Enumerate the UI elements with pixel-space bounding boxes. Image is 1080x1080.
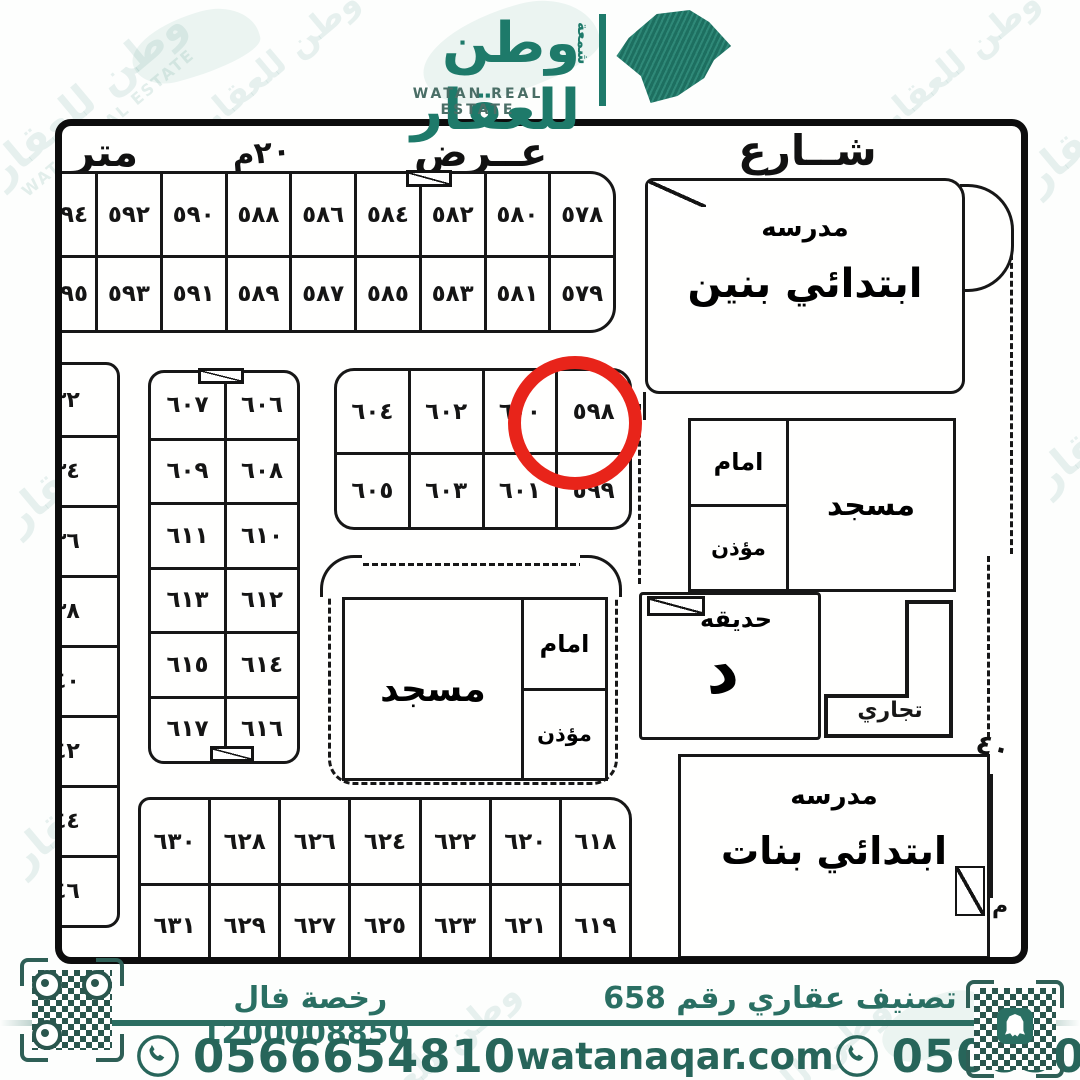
plot-row: ٩٥٥٩٣٥٩١٥٨٩٥٨٧٥٨٥٥٨٣٥٨١٥٧٩ <box>55 258 613 330</box>
street-meter-word: متر <box>72 130 138 176</box>
plot-number: ٩٥ <box>55 258 95 330</box>
plot-block-south: ٦٣٠٦٢٨٦٢٦٦٢٤٦٢٢٦٢٠٦١٨ ٦٣١٦٢٩٦٢٧٦٢٥٦٢٣٦٢١… <box>138 797 632 964</box>
qr-finder <box>32 970 62 1000</box>
plot-number: ٦٢٢ <box>419 800 489 883</box>
plot-number: ٦٢٦ <box>278 800 348 883</box>
qr-bracket <box>96 1034 124 1062</box>
watermark-text: وطن للعقار <box>1023 307 1080 502</box>
boundary-corner <box>580 555 622 597</box>
imam-room-label: امام <box>691 421 786 507</box>
plot-number: ٦١٠ <box>224 502 297 567</box>
plot-row: ٦٣٠٦٢٨٦٢٦٦٢٤٦٢٢٦٢٠٦١٨ <box>141 800 629 886</box>
street-dashed-line <box>1010 254 1013 554</box>
imam-room-label: امام <box>524 600 605 691</box>
school-girls-line2: ابتدائي بنات <box>721 829 947 873</box>
plot-number: ٥٨٥ <box>354 258 419 330</box>
qr-finder <box>82 970 112 1000</box>
plot-row: ٦٣١٦٢٩٦٢٧٦٢٥٦٢٣٦٢١٦١٩ <box>141 886 629 964</box>
brand-name-english: WATAN REAL ESTATE <box>388 86 568 118</box>
plot-map: شــارع عــرض ٢٠م متر ٩٤٥٩٢٥٩٠٥٨٨٥٨٦٥٨٤٥٨… <box>55 119 1028 964</box>
qr-bracket <box>966 1050 994 1078</box>
street-dashed-line <box>987 556 990 738</box>
plot-number: ٦٢٩ <box>208 886 278 964</box>
boundary-line <box>990 774 993 898</box>
snapchat-ghost-icon <box>997 1008 1033 1044</box>
website-link[interactable]: watanaqar.com <box>516 1035 834 1078</box>
plot-number: ٣٢ <box>55 365 117 435</box>
plot-grid: ٣٢٣٤٣٦٣٨٤٠٤٢٤٤٤٦ <box>55 365 117 925</box>
plot-number: ٥٩٠ <box>160 174 225 255</box>
qr-bracket <box>1036 980 1064 1008</box>
plot-number: ٦٢٤ <box>348 800 418 883</box>
mosque-label: مسجد <box>789 421 953 589</box>
highlight-circle-plot-598 <box>508 356 642 490</box>
footer-divider <box>0 1020 1080 1026</box>
school-boys-line1: مدرسه <box>761 213 848 243</box>
contact-bar: 0566654810 watanaqar.com 0508505505 <box>135 1030 970 1080</box>
entrance-mark <box>406 170 452 187</box>
brand-divider-bar <box>599 14 606 106</box>
plot-number: ٦١٥ <box>151 631 224 696</box>
plot-number: ٦١٣ <box>151 567 224 632</box>
qr-bracket <box>1036 1050 1064 1078</box>
plot-number: ٦٢٣ <box>419 886 489 964</box>
street-meter-mark: م <box>992 894 1008 919</box>
entrance-mark <box>647 596 705 616</box>
plot-number: ٦٢٧ <box>278 886 348 964</box>
plot-number: ٦٠٢ <box>408 371 482 452</box>
plot-number: ٥٨٩ <box>225 258 290 330</box>
brand-header: وطن للعقار WATAN REAL ESTATE شمعة <box>0 0 1080 118</box>
qr-code-left[interactable] <box>20 958 124 1062</box>
qr-code-snapchat[interactable] <box>966 980 1064 1078</box>
plot-number: ٤٤ <box>55 785 117 855</box>
plot-block-north: ٩٤٥٩٢٥٩٠٥٨٨٥٨٦٥٨٤٥٨٢٥٨٠٥٧٨ ٩٥٥٩٣٥٩١٥٨٩٥٨… <box>55 171 616 333</box>
entrance-mark <box>648 181 706 207</box>
plot-number: ٦٢٠ <box>489 800 559 883</box>
plot-number: ٣٦ <box>55 505 117 575</box>
plot-number: ٥٨٣ <box>419 258 484 330</box>
plot-number: ٤٠ <box>55 645 117 715</box>
school-boys-line2: ابتدائي بنين <box>688 261 923 307</box>
plot-number: ٥٩٢ <box>95 174 160 255</box>
garden-label: حديقه <box>700 605 772 633</box>
plot-block-west: ٦٠٧٦٠٦٦٠٩٦٠٨٦١١٦١٠٦١٣٦١٢٦١٥٦١٤٦١٧٦١٦ <box>148 370 300 764</box>
school-boys-annex <box>960 184 1014 292</box>
boundary-corner <box>320 555 362 597</box>
plot-row: ٩٤٥٩٢٥٩٠٥٨٨٥٨٦٥٨٤٥٨٢٥٨٠٥٧٨ <box>55 174 613 258</box>
classification-text: تصنيف عقاري رقم 658 <box>590 981 970 1016</box>
plot-grid: ٦٠٧٦٠٦٦٠٩٦٠٨٦١١٦١٠٦١٣٦١٢٦١٥٦١٤٦١٧٦١٦ <box>151 373 297 761</box>
plot-number: ٤٦ <box>55 855 117 925</box>
plot-number: ٥٨٨ <box>225 174 290 255</box>
mosque-center-block: مسجد امام مؤذن <box>342 597 608 781</box>
street-label-top: شــارع <box>738 126 877 175</box>
plot-number: ٦١٢ <box>224 567 297 632</box>
plot-number: ٦٢١ <box>489 886 559 964</box>
phone-left[interactable]: 0566654810 <box>135 1030 516 1080</box>
plot-number: ٤٢ <box>55 715 117 785</box>
entrance-mark <box>210 746 254 762</box>
entrance-mark <box>198 368 244 384</box>
plot-number: ٦٣١ <box>141 886 208 964</box>
qr-bracket <box>966 980 994 1008</box>
whatsapp-icon <box>135 1033 181 1079</box>
saudi-map-logo-icon <box>614 8 736 108</box>
plot-number: ٦١٨ <box>559 800 629 883</box>
plot-number: ٦١١ <box>151 502 224 567</box>
plot-number: ٥٧٨ <box>548 174 613 255</box>
mosque-label: مسجد <box>345 600 521 778</box>
plot-number: ٦٢٥ <box>348 886 418 964</box>
plot-number: ٩٤ <box>55 174 95 255</box>
plot-number: ٥٨٠ <box>484 174 549 255</box>
plot-number: ٥٩٣ <box>95 258 160 330</box>
plot-number: ٦٣٠ <box>141 800 208 883</box>
plot-number: ٥٨٧ <box>289 258 354 330</box>
entrance-mark <box>955 866 985 916</box>
phone-left-number[interactable]: 0566654810 <box>193 1030 516 1080</box>
brand-name-arabic: وطن للعقار <box>340 10 580 144</box>
muezzin-room-label: مؤذن <box>524 691 605 779</box>
qr-finder <box>32 1020 62 1050</box>
plot-number: ٣٤ <box>55 435 117 505</box>
muezzin-room-label: مؤذن <box>691 507 786 590</box>
plot-block-edge: ٣٢٣٤٣٦٣٨٤٠٤٢٤٤٤٦ <box>55 362 120 928</box>
plot-number: ٦٠٤ <box>337 371 408 452</box>
school-girls-line1: مدرسه <box>790 781 877 811</box>
school-boys-block: مدرسه ابتدائي بنين <box>645 178 965 394</box>
plot-number: ٦١٤ <box>224 631 297 696</box>
plot-number: ٦٢٨ <box>208 800 278 883</box>
whatsapp-icon <box>834 1033 880 1079</box>
plot-number: ٥٨٦ <box>289 174 354 255</box>
plot-number: ٥٨١ <box>484 258 549 330</box>
street-width-value: ٢٠م <box>231 134 292 174</box>
plot-number: ٦٠٨ <box>224 438 297 503</box>
plot-number: ٦٠٩ <box>151 438 224 503</box>
plot-number: ٦٠٣ <box>408 455 482 527</box>
boundary-line <box>643 392 646 420</box>
plot-number: ٦٠٥ <box>337 455 408 527</box>
brand-vertical-word: شمعة <box>574 22 592 110</box>
plot-number: ٦١٩ <box>559 886 629 964</box>
school-girls-block: مدرسه ابتدائي بنات <box>678 754 990 959</box>
plot-number: ٣٨ <box>55 575 117 645</box>
license-label: رخصة فال <box>233 981 387 1016</box>
mosque-east-block: امام مؤذن مسجد <box>688 418 956 592</box>
commercial-label: تجاري <box>834 698 946 723</box>
garden-letter: د <box>699 629 743 710</box>
plot-number: ٥٩١ <box>160 258 225 330</box>
plot-number: ٥٧٩ <box>548 258 613 330</box>
